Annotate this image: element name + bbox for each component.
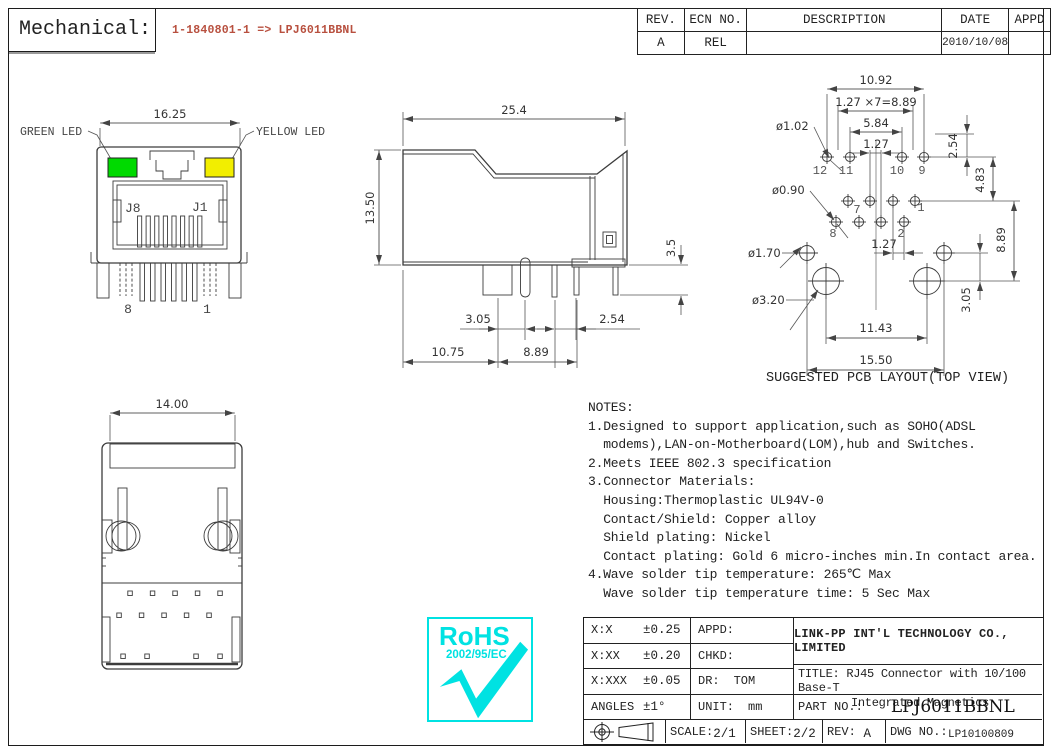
date-value: 2010/10/08: [942, 32, 1009, 55]
bottom-view: 14.00: [33, 383, 323, 683]
dim-pin-length: 3.5: [664, 239, 678, 257]
pin-number-1: 1: [917, 201, 924, 215]
pcb-layout-caption: SUGGESTED PCB LAYOUT(TOP VIEW): [766, 371, 1009, 386]
side-panel-hole: [603, 232, 616, 247]
dwg-no-value: LP10100809: [948, 729, 1014, 743]
dwg-no-label: DWG NO.:: [890, 725, 948, 739]
hole-dia-signal2: ø0.90: [772, 183, 805, 197]
title-label: TITLE:: [798, 667, 839, 681]
appd-label: APPD:: [698, 623, 734, 637]
third-angle-projection-icon: [589, 721, 661, 743]
part-no-value: LPJ6011BBNL: [891, 697, 1015, 717]
green-led-label: GREEN LED: [20, 126, 82, 139]
col-desc: DESCRIPTION: [747, 9, 942, 32]
dr-value: TOM: [734, 674, 756, 688]
sheet-cell: SHEET: 2/2: [746, 720, 823, 743]
dr-cell: DR: TOM: [691, 669, 794, 695]
revision-header-row: REV. ECN NO. DESCRIPTION DATE APPD: [638, 9, 1051, 32]
hole-dia-signal: ø1.02: [776, 119, 809, 133]
rev-cell: REV: A: [823, 720, 886, 743]
dim-inner-span: 5.84: [863, 116, 889, 130]
unit-label: UNIT:: [698, 700, 734, 714]
tolerance-row-2: X:XX ±0.20: [584, 644, 691, 670]
dim-pin-pitch: 2.54: [599, 312, 625, 326]
dim-pitch-total: 1.27 ×7=8.89: [835, 95, 916, 109]
pin-label-1: 1: [203, 302, 211, 317]
front-view-body: J8 J1 8 1: [91, 147, 247, 317]
desc-value: [747, 32, 942, 55]
revision-table: REV. ECN NO. DESCRIPTION DATE APPD A REL…: [637, 8, 1051, 55]
chkd-cell: CHKD:: [691, 644, 794, 670]
company-name-cell: LINK-PP INT'L TECHNOLOGY CO., LIMITED: [794, 618, 1042, 665]
part-number-cell: PART NO.: LPJ6011BBNL: [794, 695, 1042, 721]
bottom-view-body: [102, 443, 242, 669]
col-appd: APPD: [1009, 9, 1051, 32]
tol-value: ±0.20: [643, 649, 681, 663]
tolerance-row-3: X:XXX ±0.05: [584, 669, 691, 695]
dim-small-hole-span: 15.50: [860, 353, 893, 367]
sheet-value: 2/2: [793, 727, 816, 743]
dim-rear: 8.89: [523, 345, 549, 359]
dim-side-height: 13.50: [363, 192, 377, 225]
solder-pin: [552, 265, 557, 297]
unit-value: mm: [748, 700, 762, 714]
tol-label: X:XXX: [591, 674, 643, 688]
section-title: Mechanical:: [19, 18, 151, 41]
left-post-circle: [106, 521, 136, 551]
pin-number-2: 2: [897, 227, 904, 241]
unit-cell: UNIT: mm: [691, 695, 794, 721]
yellow-led: [205, 158, 234, 177]
part-no-label: PART NO.:: [798, 700, 863, 714]
hole-dia-big-post: ø3.20: [752, 293, 785, 307]
dim-overall-width: 10.92: [860, 73, 893, 87]
tol-label: X:X: [591, 623, 643, 637]
rohs-checkmark-icon: [432, 639, 530, 719]
dim-big-hole-span: 11.43: [860, 321, 893, 335]
side-view-body: [403, 150, 627, 297]
side-view: 25.4 13.50: [358, 100, 692, 370]
scale-value: 2/1: [713, 727, 736, 743]
company-name: LINK-PP INT'L TECHNOLOGY CO., LIMITED: [794, 627, 1042, 655]
tol-value: ±0.25: [643, 623, 681, 637]
right-post-circle: [208, 521, 238, 551]
front-shield-legs: [91, 252, 247, 301]
latch-keyway-outer: [150, 151, 194, 160]
dim-post-offset: 3.05: [959, 287, 973, 313]
chkd-label: CHKD:: [698, 649, 734, 663]
col-date: DATE: [942, 9, 1009, 32]
dwg-no-cell: DWG NO.: LP10100809: [886, 720, 1042, 743]
dim-side-width: 25.4: [501, 103, 527, 117]
latch-keyway-inner: [156, 160, 188, 179]
jack-contacts: [138, 216, 202, 247]
tol-value: ±0.05: [643, 674, 681, 688]
rohs-logo: RoHS 2002/95/EC: [427, 617, 533, 722]
tolerance-row-1: X:X ±0.25: [584, 618, 691, 644]
rev-value: A: [638, 32, 685, 55]
pin-number-11: 11: [839, 164, 853, 178]
sheet-label: SHEET:: [750, 725, 793, 739]
pin-number-9: 9: [918, 164, 925, 178]
hole-row-top: [820, 150, 931, 164]
dim-row-offset: 2.54: [946, 133, 960, 159]
front-flange: [572, 259, 625, 267]
appd-value: [1009, 32, 1051, 55]
part-mapping-text: 1-1840801-1 => LPJ6011BBNL: [172, 24, 357, 37]
scale-cell: SCALE: 2/1: [666, 720, 746, 743]
section-title-box: Mechanical:: [8, 8, 156, 52]
rev-value: A: [863, 727, 871, 743]
dim-post-offset: 3.05: [465, 312, 491, 326]
ecn-value: REL: [684, 32, 747, 55]
side-view-lower-dimensions: 3.5 3.05 2.54 10.75 8.89: [403, 239, 688, 368]
hole-dia-small-post: ø1.70: [748, 246, 781, 260]
appd-cell: APPD:: [691, 618, 794, 644]
projection-symbol-cell: [584, 720, 666, 743]
tol-label: X:XX: [591, 649, 643, 663]
jack-label-j1: J1: [192, 200, 208, 215]
drawing-title-cell: TITLE: RJ45 Connector with 10/100 Base-T…: [794, 665, 1042, 695]
bottom-pin-holes: [117, 591, 223, 659]
title-block: X:X ±0.25 X:XX ±0.20 X:XXX ±0.05 ANGLES …: [583, 617, 1044, 745]
tol-label: ANGLES: [591, 700, 643, 714]
col-ecn: ECN NO.: [684, 9, 747, 32]
pin-label-8: 8: [124, 302, 132, 317]
pcb-dimensions: 10.92 1.27 ×7=8.89 5.84 1.27 ø1.02 ø0.90: [748, 73, 1020, 376]
shield-hairpin-leg: [521, 258, 531, 297]
drawing-sheet: Mechanical: 1-1840801-1 => LPJ6011BBNL R…: [0, 0, 1051, 749]
pcb-pin-numbers: 12 11 10 9 7 1 8 2: [813, 164, 926, 241]
dim-front-width: 16.25: [154, 107, 187, 121]
pin-number-7: 7: [853, 203, 860, 217]
dim-front: 10.75: [432, 345, 465, 359]
dim-pitch-lower: 1.27: [871, 237, 897, 251]
pin-number-12: 12: [813, 164, 827, 178]
pcb-layout-view: 12 11 10 9 7 1 8 2 10.92 1.27 ×7=8.89: [743, 62, 1051, 390]
bottom-view-dimensions: 14.00: [110, 397, 235, 441]
dim-bottom-width: 14.00: [156, 397, 189, 411]
plastic-post: [483, 265, 512, 295]
revision-data-row: A REL 2010/10/08: [638, 32, 1051, 55]
tolerance-row-angles: ANGLES ±1°: [584, 695, 691, 721]
tol-value: ±1°: [643, 700, 666, 714]
notes-block: NOTES: 1.Designed to support application…: [588, 399, 1036, 604]
dim-post-row: 8.89: [994, 227, 1008, 253]
pin-number-10: 10: [890, 164, 904, 178]
pin-number-8: 8: [829, 227, 836, 241]
rev-label: REV:: [827, 725, 856, 739]
col-rev: REV.: [638, 9, 685, 32]
green-led: [108, 158, 137, 177]
scale-label: SCALE:: [670, 725, 713, 739]
dim-row-spacing: 4.83: [973, 167, 987, 193]
side-view-dimensions: 25.4 13.50: [363, 103, 625, 265]
front-view: 16.25 GREEN LED YELLOW LED: [14, 95, 330, 325]
jack-label-j8: J8: [125, 201, 141, 216]
yellow-led-label: YELLOW LED: [256, 126, 325, 139]
dim-pitch: 1.27: [863, 137, 889, 151]
dr-label: DR:: [698, 674, 720, 688]
